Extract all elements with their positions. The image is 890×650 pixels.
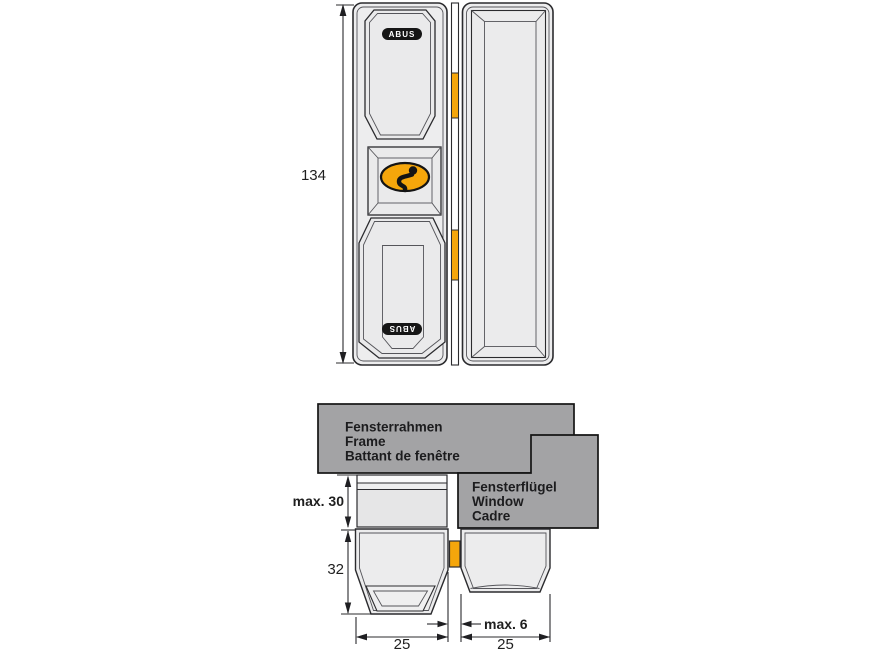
spacer-section <box>357 475 447 527</box>
dim-max-30-label: max. 30 <box>293 493 345 509</box>
abus-logo-bottom-text: ABUS <box>389 324 416 333</box>
arrow-down-icon <box>340 352 347 364</box>
abus-logo-bottom: ABUS <box>382 323 422 335</box>
abus-logo-top: ABUS <box>382 28 422 40</box>
window-lock-technical-drawing: 134 ABUS <box>0 0 890 650</box>
dim-max-6-label: max. 6 <box>484 616 528 632</box>
dim-25-right-label: 25 <box>497 636 514 650</box>
dim-25-left-label: 25 <box>394 636 411 650</box>
dim-32-label: 32 <box>327 561 344 578</box>
locking-bolt <box>450 541 461 567</box>
bolt-strip-lower <box>452 230 459 280</box>
lock-section <box>356 529 449 614</box>
key-cylinder-section <box>368 147 441 215</box>
frame-label-fr: Battant de fenêtre <box>345 449 460 464</box>
bolt-strip-upper <box>452 73 459 118</box>
sash-label-de: Fensterflügel <box>472 480 557 495</box>
frame-label-de: Fensterrahmen <box>345 420 443 435</box>
keeper-panel <box>472 11 546 358</box>
dim-max-30: max. 30 <box>293 475 358 528</box>
dim-134: 134 <box>301 4 354 364</box>
lock-bottom-panel <box>359 218 445 358</box>
dim-max-6: max. 6 <box>427 616 528 632</box>
keeper-section <box>461 529 550 592</box>
lock-front-view: ABUS ABUS <box>353 3 447 365</box>
keeper-front-view <box>463 3 554 365</box>
dim-25-right: 25 <box>461 634 550 650</box>
sash-label-en: Window <box>472 494 524 509</box>
bolt-channel <box>452 3 459 365</box>
lock-section-recess <box>366 586 435 611</box>
abus-logo-top-text: ABUS <box>389 30 416 39</box>
sash-label-fr: Cadre <box>472 509 511 524</box>
frame-label-en: Frame <box>345 434 386 449</box>
arrow-up-icon <box>340 4 347 16</box>
dim-134-label: 134 <box>301 167 326 184</box>
diagram-page: 134 ABUS <box>0 0 890 650</box>
dim-25-left: 25 <box>356 634 448 650</box>
